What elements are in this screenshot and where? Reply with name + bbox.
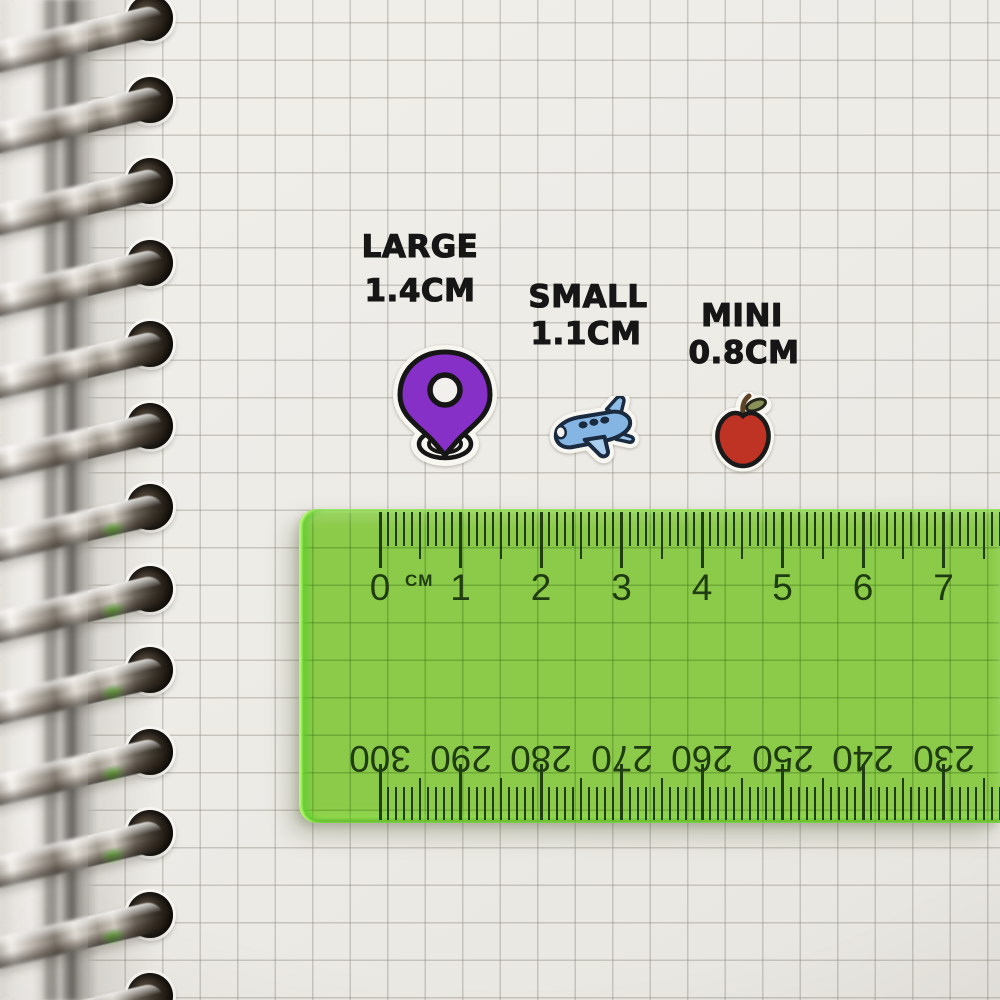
ruler-number-top: 0 [370,567,391,609]
location-pin-sticker [386,344,504,470]
ruler-tick-bottom [733,787,735,820]
ruler-tick-bottom [645,787,647,820]
label-small-size: 1.1CM [530,316,641,352]
ruler-tick-top [749,512,751,546]
ruler-tick-bottom [395,787,397,820]
ruler-tick-bottom [443,787,445,820]
ruler-unit-label: CM [405,571,433,591]
ruler-tick-bottom [435,787,437,820]
ruler-tick-bottom [894,787,896,820]
ruler-tick-bottom [564,787,566,820]
ruler-tick-bottom [991,787,993,820]
ruler-tick-top [862,512,865,568]
ruler-tick-top [846,512,848,546]
notebook-photo-scene: LARGE 1.4CM SMALL 1.1CM MINI 0.8CM [0,0,1000,1000]
ruler-tick-top [508,512,510,546]
ruler-tick-top [443,512,445,546]
ruler-tick-bottom [596,787,598,820]
ruler-tick-top [435,512,437,546]
ruler-tick-top [637,512,639,546]
ruler-tick-top [918,512,920,546]
ruler-number-bottom: 300 [349,737,411,779]
ruler-tick-top [661,512,663,559]
ruler-tick-bottom [524,787,526,820]
ruler-tick-top [476,512,478,546]
ruler-tick-top [379,512,382,568]
ruler-tick-top [403,512,405,546]
ruler-tick-top [427,512,429,546]
ruler-tick-top [951,512,953,546]
ruler-tick-bottom [661,778,663,820]
ruler-tick-top [838,512,840,546]
ruler-tick-top [548,512,550,546]
ruler-tick-top [854,512,856,546]
ruler-number-top: 6 [853,567,874,609]
ruler-tick-top [484,512,486,546]
ruler-tick-top [669,512,671,546]
ruler-tick-bottom [669,787,671,820]
ruler-tick-top [983,512,985,559]
ruler: CM 01234567300290280270260250240230 [299,509,1000,823]
ruler-number-top: 4 [692,567,713,609]
ruler-tick-top [798,512,800,546]
ruler-tick-bottom [411,787,413,820]
ruler-tick-top [387,512,389,546]
ruler-tick-top [910,512,912,546]
ruler-tick-bottom [790,787,792,820]
ruler-tick-bottom [870,787,872,820]
ruler-number-top: 1 [450,567,471,609]
ruler-tick-top [596,512,598,546]
ruler-tick-bottom [878,787,880,820]
ruler-tick-top [878,512,880,546]
ruler-tick-top [806,512,808,546]
apple-sticker [708,392,778,474]
ruler-number-bottom: 280 [510,737,572,779]
ruler-tick-top [765,512,767,546]
ruler-tick-top [572,512,574,546]
ruler-tick-bottom [451,787,453,820]
ruler-tick-top [773,512,775,546]
ruler-tick-bottom [484,787,486,820]
ruler-tick-top [693,512,695,546]
ruler-tick-top [822,512,824,559]
plane-nose [555,426,566,439]
ruler-tick-top [516,512,518,546]
ruler-tick-top [532,512,534,546]
ruler-number-bottom: 270 [591,737,653,779]
ruler-tick-top [419,512,421,559]
ruler-tick-bottom [653,787,655,820]
ruler-tick-top [395,512,397,546]
ruler-tick-bottom [886,787,888,820]
ruler-tick-bottom [532,787,534,820]
ruler-tick-bottom [798,787,800,820]
ruler-tick-bottom [468,787,470,820]
ruler-tick-bottom [757,787,759,820]
ruler-tick-top [870,512,872,546]
ruler-tick-top [629,512,631,546]
ruler-tick-top [942,512,945,568]
ruler-tick-bottom [902,778,904,820]
ruler-tick-bottom [476,787,478,820]
ruler-tick-bottom [556,787,558,820]
ruler-tick-bottom [709,787,711,820]
ruler-tick-bottom [854,787,856,820]
ruler-tick-top [685,512,687,546]
ruler-tick-bottom [580,778,582,820]
ruler-tick-bottom [741,778,743,820]
ruler-tick-top [451,512,453,546]
ruler-tick-bottom [612,787,614,820]
ruler-tick-top [524,512,526,546]
ruler-number-bottom: 230 [913,737,975,779]
ruler-tick-top [757,512,759,546]
ruler-tick-top [741,512,743,559]
ruler-tick-top [653,512,655,546]
ruler-tick-top [926,512,928,546]
ruler-tick-bottom [548,787,550,820]
ruler-tick-top [709,512,711,546]
ruler-tick-top [612,512,614,546]
ruler-tick-bottom [959,787,961,820]
ruler-tick-top [492,512,494,546]
ruler-tick-top [677,512,679,546]
ruler-tick-bottom [629,787,631,820]
ruler-tick-top [886,512,888,546]
ruler-tick-bottom [846,787,848,820]
ruler-tick-top [717,512,719,546]
ruler-tick-bottom [773,787,775,820]
label-large-size: 1.4CM [364,273,475,309]
ruler-number-top: 7 [933,567,954,609]
ruler-tick-top [411,512,413,546]
ruler-tick-bottom [637,787,639,820]
ruler-number-bottom: 240 [832,737,894,779]
ruler-tick-top [830,512,832,546]
binding-blur-overlay [0,0,88,1000]
ruler-tick-top [967,512,969,546]
ruler-tick-bottom [749,787,751,820]
pin-hole [430,375,460,405]
ruler-tick-top [459,512,462,568]
ruler-tick-bottom [765,787,767,820]
ruler-tick-top [959,512,961,546]
ruler-tick-bottom [492,787,494,820]
ruler-tick-bottom [725,787,727,820]
ruler-tick-top [468,512,470,546]
ruler-tick-bottom [918,787,920,820]
ruler-tick-bottom [572,787,574,820]
label-mini-title: MINI [701,298,783,334]
ruler-tick-top [645,512,647,546]
ruler-tick-top [991,512,993,546]
ruler-tick-top [790,512,792,546]
ruler-tick-top [701,512,704,568]
label-small-title: SMALL [528,279,647,315]
ruler-tick-top [580,512,582,559]
ruler-tick-bottom [419,778,421,820]
ruler-tick-bottom [403,787,405,820]
ruler-tick-bottom [951,787,953,820]
ruler-tick-top [620,512,623,568]
ruler-tick-top [564,512,566,546]
ruler-tick-bottom [508,787,510,820]
ruler-tick-bottom [830,787,832,820]
ruler-tick-bottom [910,787,912,820]
ruler-number-bottom: 250 [752,737,814,779]
ruler-tick-top [814,512,816,546]
ruler-tick-top [894,512,896,546]
ruler-tick-bottom [685,787,687,820]
ruler-tick-top [556,512,558,546]
ruler-tick-bottom [604,787,606,820]
ruler-tick-bottom [822,778,824,820]
ruler-tick-top [781,512,784,568]
ruler-tick-top [733,512,735,546]
ruler-tick-top [604,512,606,546]
ruler-tick-top [975,512,977,546]
ruler-tick-top [902,512,904,559]
ruler-tick-bottom [427,787,429,820]
ruler-tick-top [725,512,727,546]
ruler-number-top: 2 [531,567,552,609]
apple-body [717,413,768,466]
ruler-number-top: 3 [611,567,632,609]
ruler-tick-bottom [926,787,928,820]
ruler-tick-bottom [588,787,590,820]
ruler-number-top: 5 [772,567,793,609]
ruler-tick-bottom [516,787,518,820]
ruler-tick-bottom [500,778,502,820]
ruler-tick-bottom [806,787,808,820]
ruler-tick-bottom [814,787,816,820]
ruler-tick-bottom [934,787,936,820]
ruler-tick-bottom [967,787,969,820]
ruler-tick-bottom [717,787,719,820]
ruler-tick-top [540,512,543,568]
ruler-tick-bottom [975,787,977,820]
ruler-tick-bottom [677,787,679,820]
airplane-sticker [542,396,644,470]
ruler-tick-bottom [387,787,389,820]
label-mini-size: 0.8CM [688,335,799,371]
ruler-tick-bottom [983,778,985,820]
ruler-tick-top [588,512,590,546]
ruler-number-bottom: 290 [430,737,492,779]
ruler-tick-top [500,512,502,559]
ruler-tick-bottom [693,787,695,820]
ruler-tick-top [934,512,936,546]
ruler-number-bottom: 260 [671,737,733,779]
label-large-title: LARGE [362,229,479,265]
ruler-tick-bottom [838,787,840,820]
